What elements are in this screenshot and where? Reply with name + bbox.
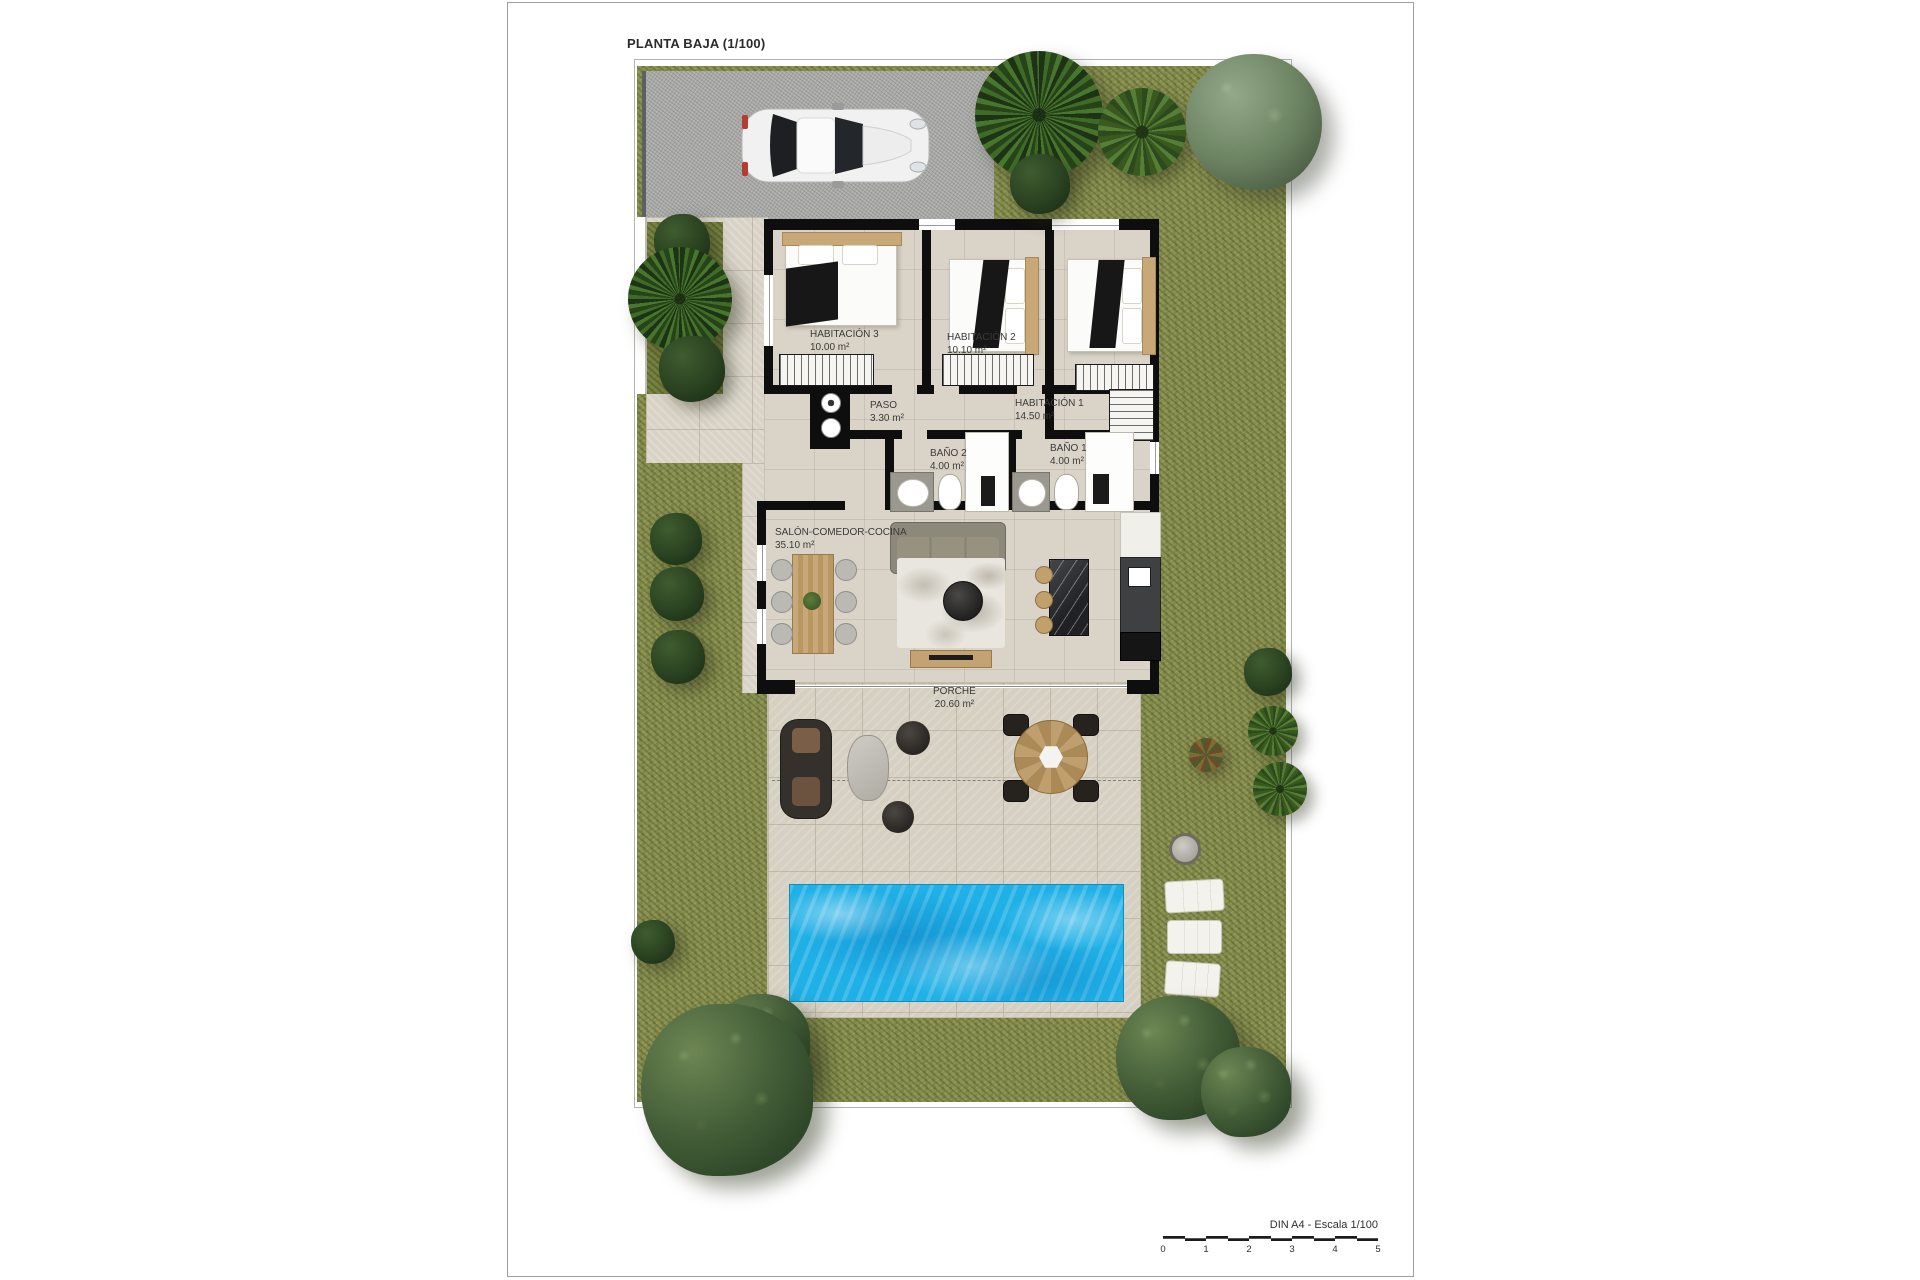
room-area: 4.00 m² <box>1050 456 1084 467</box>
room-name: BAÑO 2 <box>930 448 967 459</box>
wall-salon-top-1 <box>757 501 845 510</box>
kitchen-appliance <box>1120 632 1161 661</box>
room-name: PASO <box>870 400 897 411</box>
room-name: PORCHE <box>933 686 976 697</box>
kitchen-stool <box>1035 566 1053 584</box>
wall-top-c <box>1119 219 1159 230</box>
large-tree <box>1186 54 1322 190</box>
room-name: HABITACIÓN 1 <box>1015 398 1084 409</box>
room-name: SALÓN-COMEDOR-COCINA <box>775 527 907 538</box>
room-label-bano1: BAÑO 1 4.00 m² <box>1050 443 1087 468</box>
room-area: 35.10 m² <box>775 540 814 551</box>
wall-salon-bottom-right <box>1127 680 1159 694</box>
table-plant <box>803 592 821 610</box>
sun-lounger <box>1164 960 1221 998</box>
room-area: 20.60 m² <box>935 699 974 710</box>
bush <box>650 513 702 565</box>
wall-left-b <box>764 346 773 385</box>
room-area: 14.50 m² <box>1015 411 1054 422</box>
wardrobe-habitacion3 <box>779 354 874 386</box>
pillow <box>1122 308 1142 344</box>
wall-salon-bottom-left <box>757 680 795 694</box>
headboard <box>1142 257 1156 355</box>
partition-bed3-bed2 <box>922 230 931 385</box>
window-top-1 <box>919 219 955 230</box>
bush <box>631 920 675 964</box>
sun-lounger <box>1167 920 1222 954</box>
scale-tick: 0 <box>1160 1244 1165 1255</box>
room-label-bano2: BAÑO 2 4.00 m² <box>930 448 967 473</box>
scale-bar-label: DIN A4 - Escala 1/100 <box>1068 1219 1378 1231</box>
plan-title: PLANTA BAJA (1/100) <box>627 36 765 51</box>
scale-tick: 3 <box>1289 1244 1294 1255</box>
room-label-salon: SALÓN-COMEDOR-COCINA 35.10 m² <box>775 527 907 552</box>
wall-salon-left <box>757 510 766 694</box>
room-label-habitacion2: HABITACIÓN 2 10.10 m² <box>947 332 1016 357</box>
room-area: 10.00 m² <box>810 342 849 353</box>
room-name: BAÑO 1 <box>1050 443 1087 454</box>
wardrobe-habitacion1 <box>1075 364 1154 391</box>
sun-lounger <box>1164 878 1225 913</box>
outdoor-sofa <box>780 719 832 819</box>
kitchen-counter <box>1120 557 1161 634</box>
floor-plan-page: PLANTA BAJA (1/100) <box>0 0 1920 1280</box>
dining-chair <box>835 591 857 613</box>
scale-tick: 2 <box>1246 1244 1251 1255</box>
headboard <box>782 232 902 246</box>
wall-baths-top-1 <box>850 430 902 439</box>
bed-habitacion1 <box>1067 259 1153 352</box>
blanket <box>786 261 838 326</box>
palm-bush <box>1248 706 1298 756</box>
shower-fixture <box>981 476 995 506</box>
palm-bush <box>1098 88 1186 176</box>
bush <box>1244 648 1292 696</box>
site-plot: HABITACIÓN 3 10.00 m² HABITACIÓN 2 10.10… <box>634 59 1292 1108</box>
pillow <box>1005 268 1025 304</box>
pillow <box>1122 268 1142 304</box>
partition-bed2-bed1 <box>1045 230 1054 385</box>
room-label-paso: PASO 3.30 m² <box>870 400 904 425</box>
bush <box>1010 154 1070 214</box>
scale-tick: 4 <box>1332 1244 1337 1255</box>
wardrobe-habitacion2 <box>942 354 1034 386</box>
wall-bedrooms-bottom-2 <box>917 385 934 394</box>
window-salon-left-2 <box>757 609 766 644</box>
laundry-sink-icon <box>821 418 841 438</box>
outdoor-ottoman <box>847 735 889 801</box>
kitchen-cabinets <box>1120 512 1161 559</box>
room-name: HABITACIÓN 2 <box>947 332 1016 343</box>
coffee-table <box>943 581 983 621</box>
bush <box>651 630 705 684</box>
scale-tick: 1 <box>1203 1244 1208 1255</box>
window-left <box>764 275 773 346</box>
tv-unit <box>910 650 992 668</box>
room-label-habitacion1: HABITACIÓN 1 14.50 m² <box>1015 398 1084 423</box>
bush <box>659 336 725 402</box>
car <box>739 102 932 189</box>
toilet-bano2 <box>938 474 962 510</box>
dining-chair <box>835 623 857 645</box>
large-tree <box>641 1004 813 1176</box>
outdoor-pouf <box>896 721 930 755</box>
shower-bano1 <box>1085 432 1134 512</box>
scale-tick: 5 <box>1375 1244 1380 1255</box>
headboard <box>1025 257 1039 355</box>
tree <box>1201 1047 1291 1137</box>
scale-bar-ticks: 0 1 2 3 4 5 <box>1163 1244 1378 1258</box>
plan-sheet: PLANTA BAJA (1/100) <box>507 2 1414 1277</box>
window-top-2 <box>1052 219 1119 230</box>
blanket <box>1089 260 1124 348</box>
bed-habitacion3 <box>785 234 897 326</box>
wall-top-a <box>764 219 919 230</box>
room-area: 4.00 m² <box>930 461 964 472</box>
shower-fixture <box>1093 474 1109 504</box>
room-area: 3.30 m² <box>870 413 904 424</box>
window-salon-left-1 <box>757 545 766 581</box>
kitchen-stool <box>1035 616 1053 634</box>
wall-left-a <box>764 230 773 275</box>
patio-round-table <box>1014 720 1088 794</box>
room-area: 10.10 m² <box>947 345 986 356</box>
dining-chair <box>771 559 793 581</box>
outdoor-pouf <box>882 801 914 833</box>
room-name: HABITACIÓN 3 <box>810 329 879 340</box>
swimming-pool <box>789 884 1124 1002</box>
palm-tree <box>628 247 732 351</box>
kitchen-island <box>1049 559 1089 636</box>
wall-top-b <box>955 219 1052 230</box>
toilet-bano1 <box>1054 474 1079 510</box>
kitchen-stool <box>1035 591 1053 609</box>
palm-bush <box>1253 762 1307 816</box>
washing-machine-icon <box>821 393 841 413</box>
sink-bano2 <box>890 472 934 512</box>
shrub <box>1189 738 1223 772</box>
garden-side-table <box>1169 833 1201 865</box>
room-label-habitacion3: HABITACIÓN 3 10.00 m² <box>810 329 879 354</box>
window-right-1 <box>1150 442 1159 474</box>
dining-chair <box>771 623 793 645</box>
scale-bar <box>1163 1236 1378 1241</box>
dining-chair <box>835 559 857 581</box>
shower-bano2 <box>965 432 1009 512</box>
bush <box>650 567 704 621</box>
pillow <box>842 245 878 265</box>
wall-bedrooms-bottom-3 <box>959 385 1017 394</box>
sink-bano1 <box>1012 472 1050 512</box>
dining-chair <box>771 591 793 613</box>
room-label-porche: PORCHE 20.60 m² <box>933 686 976 711</box>
